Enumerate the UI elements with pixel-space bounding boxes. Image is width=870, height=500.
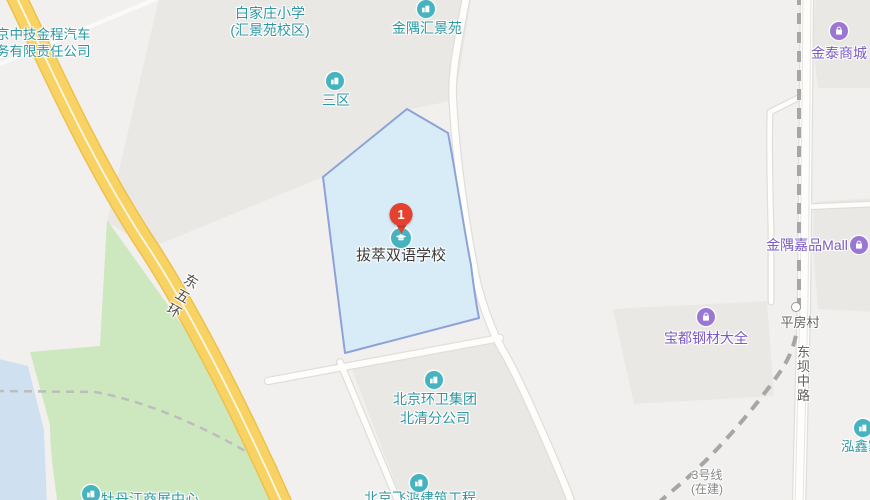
poi-label-hongxin[interactable]: 泓鑫家园 bbox=[841, 438, 870, 455]
residence-building-icon[interactable] bbox=[417, 0, 435, 18]
selected-poi-label-bacui-school[interactable]: 拔萃双语学校 bbox=[356, 247, 446, 264]
map-marker-1[interactable]: 1 bbox=[390, 203, 413, 234]
poi-label-company[interactable]: 京中技金程汽车 务有限责任公司 bbox=[0, 26, 91, 60]
poi-label-jintai-mall[interactable]: 金泰商城 bbox=[811, 45, 867, 62]
poi-label-mudanjiang-center[interactable]: 牡丹江商展中心 bbox=[101, 491, 199, 500]
poi-label-huanwei-group[interactable]: 北京环卫集团 北清分公司 bbox=[393, 390, 477, 427]
poi-label-jinyu-huijingyuan[interactable]: 金隅汇景苑 bbox=[392, 20, 462, 37]
marker-number: 1 bbox=[397, 207, 404, 222]
village-label-pingfangcun: 平房村 bbox=[780, 314, 819, 331]
poi-label-jinyu-jiapin-mall[interactable]: 金隅嘉品Mall bbox=[766, 237, 848, 254]
road-label-dongba-middle-road: 东坝中路 bbox=[795, 345, 809, 403]
block-top-right bbox=[812, 0, 870, 88]
poi-label-baodu-steel[interactable]: 宝都钢材大全 bbox=[664, 330, 748, 347]
poi-label-sanqu[interactable]: 三区 bbox=[322, 92, 350, 109]
company-building-icon[interactable] bbox=[410, 474, 428, 492]
block-jiapin-mall bbox=[813, 198, 870, 312]
company-building-icon[interactable] bbox=[82, 485, 100, 500]
shopping-bag-icon[interactable] bbox=[850, 236, 868, 254]
village-dot-icon bbox=[791, 302, 801, 312]
shopping-bag-icon[interactable] bbox=[830, 22, 848, 40]
block-baodu bbox=[613, 301, 774, 404]
marker-pin[interactable]: 1 bbox=[390, 203, 413, 226]
poi-label-baijiazhuang-school[interactable]: 白家庄小学 (汇景苑校区) bbox=[230, 5, 309, 39]
residence-building-icon[interactable] bbox=[854, 419, 870, 437]
transit-label-line3: 3号线 (在建) bbox=[691, 469, 723, 496]
residence-building-icon[interactable] bbox=[326, 72, 344, 90]
company-building-icon[interactable] bbox=[425, 371, 443, 389]
shopping-bag-icon[interactable] bbox=[697, 308, 715, 326]
map-canvas[interactable]: 1 京中技金程汽车 务有限责任公司 白家庄小学 (汇景苑校区) 金隅汇景苑 三区… bbox=[0, 0, 870, 500]
